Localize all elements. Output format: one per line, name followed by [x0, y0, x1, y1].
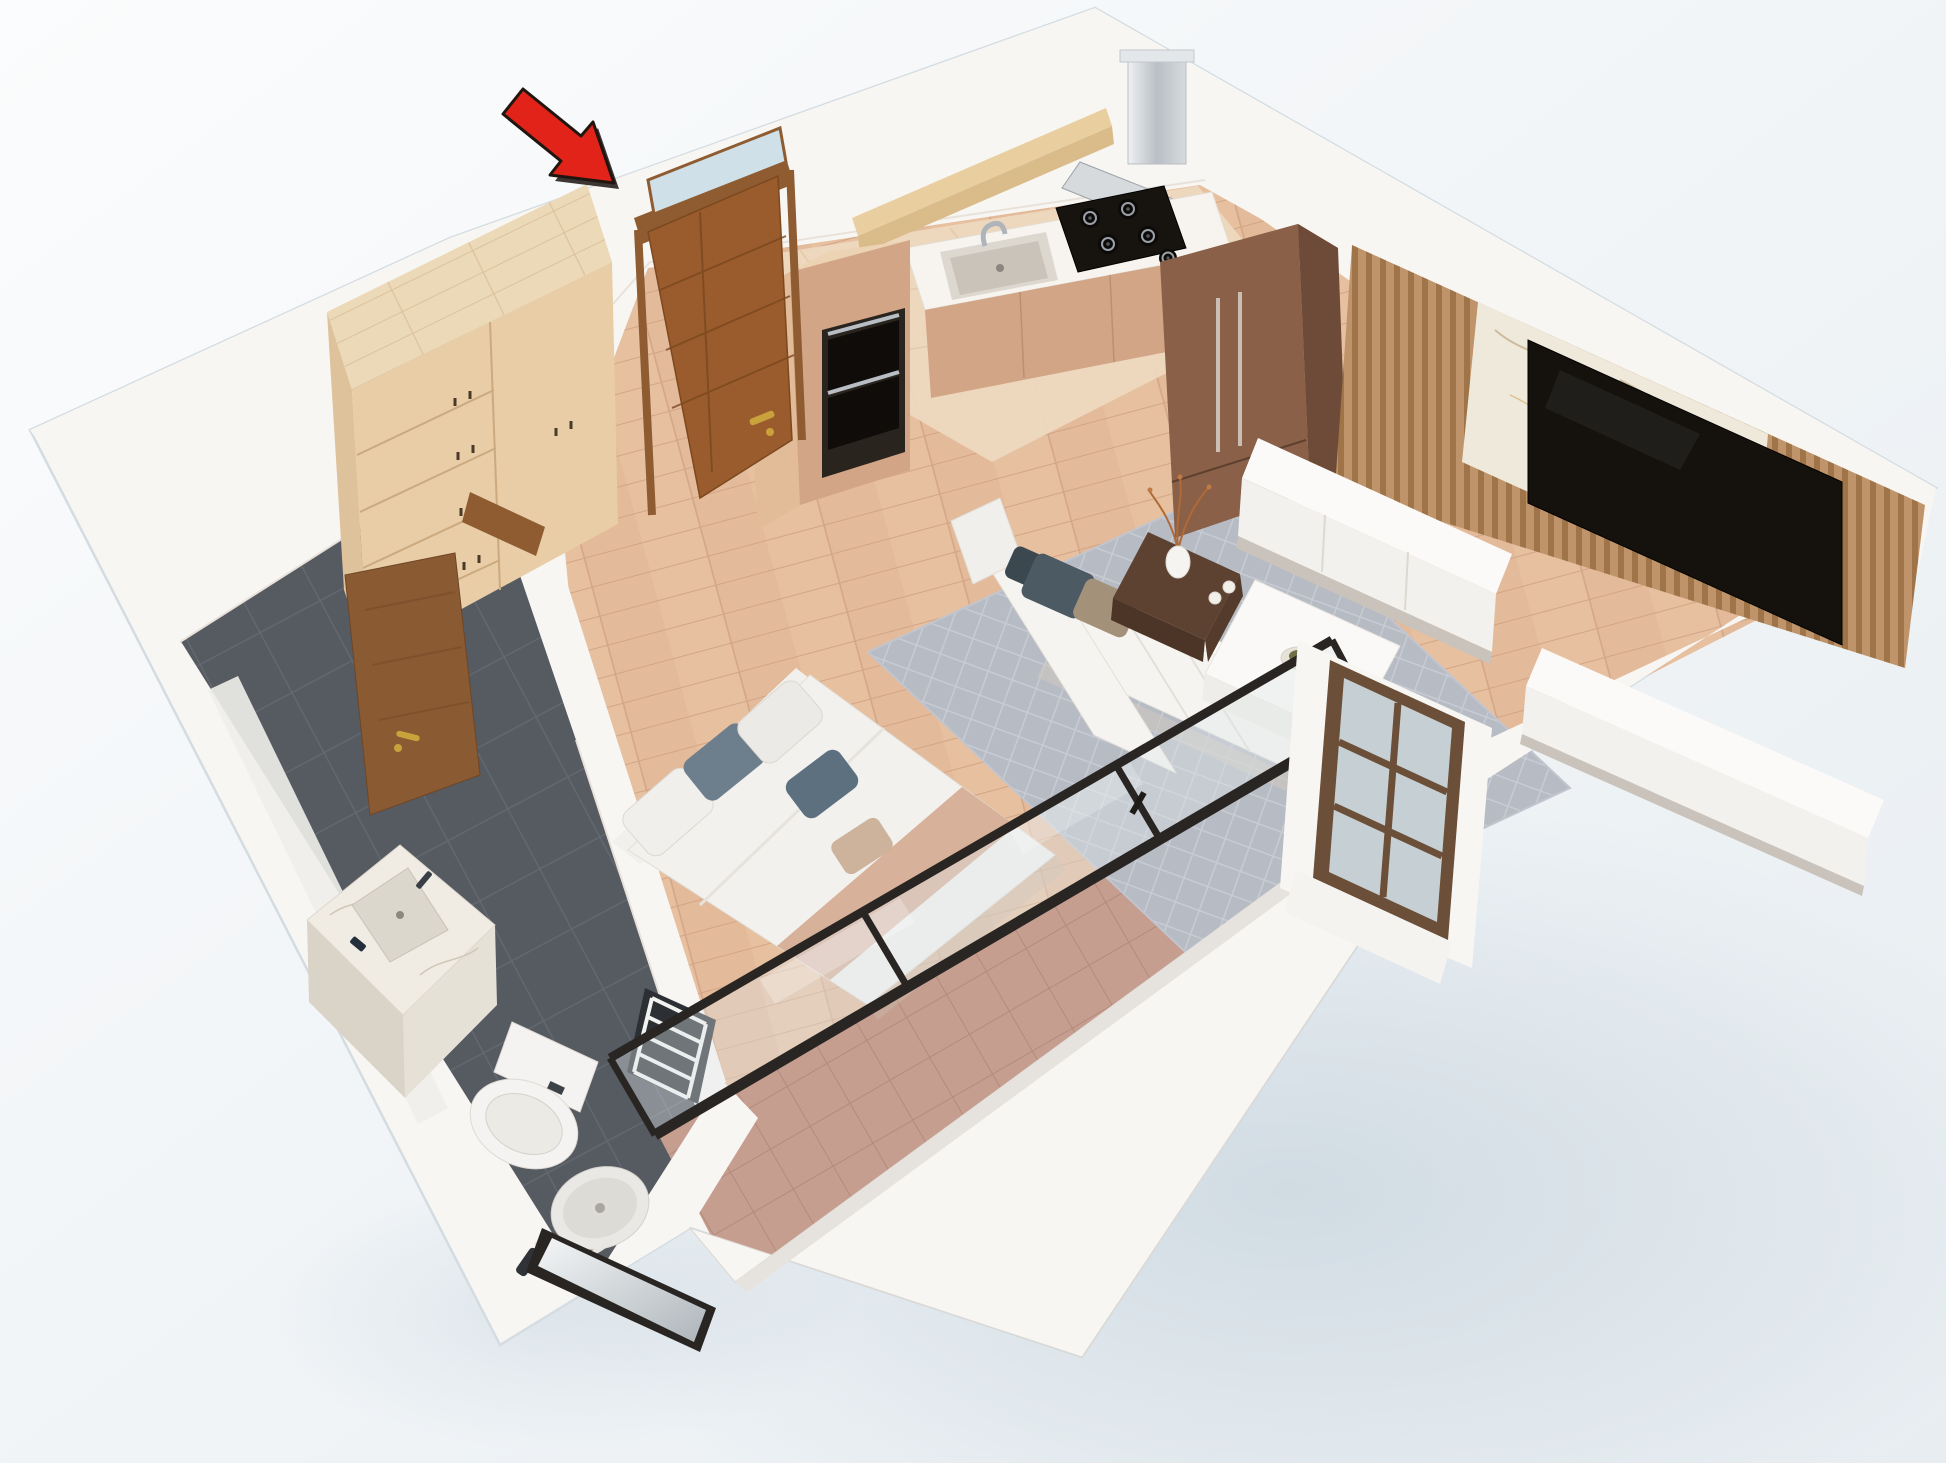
- cup-2: [1223, 581, 1235, 593]
- range-hood-chimney: [1128, 58, 1186, 164]
- floor-plan-render: [0, 0, 1946, 1463]
- vase: [1166, 546, 1190, 578]
- basin-drain: [396, 911, 404, 919]
- range-hood-cap: [1120, 50, 1194, 62]
- sink-drain: [996, 264, 1004, 272]
- cup-1: [1209, 592, 1221, 604]
